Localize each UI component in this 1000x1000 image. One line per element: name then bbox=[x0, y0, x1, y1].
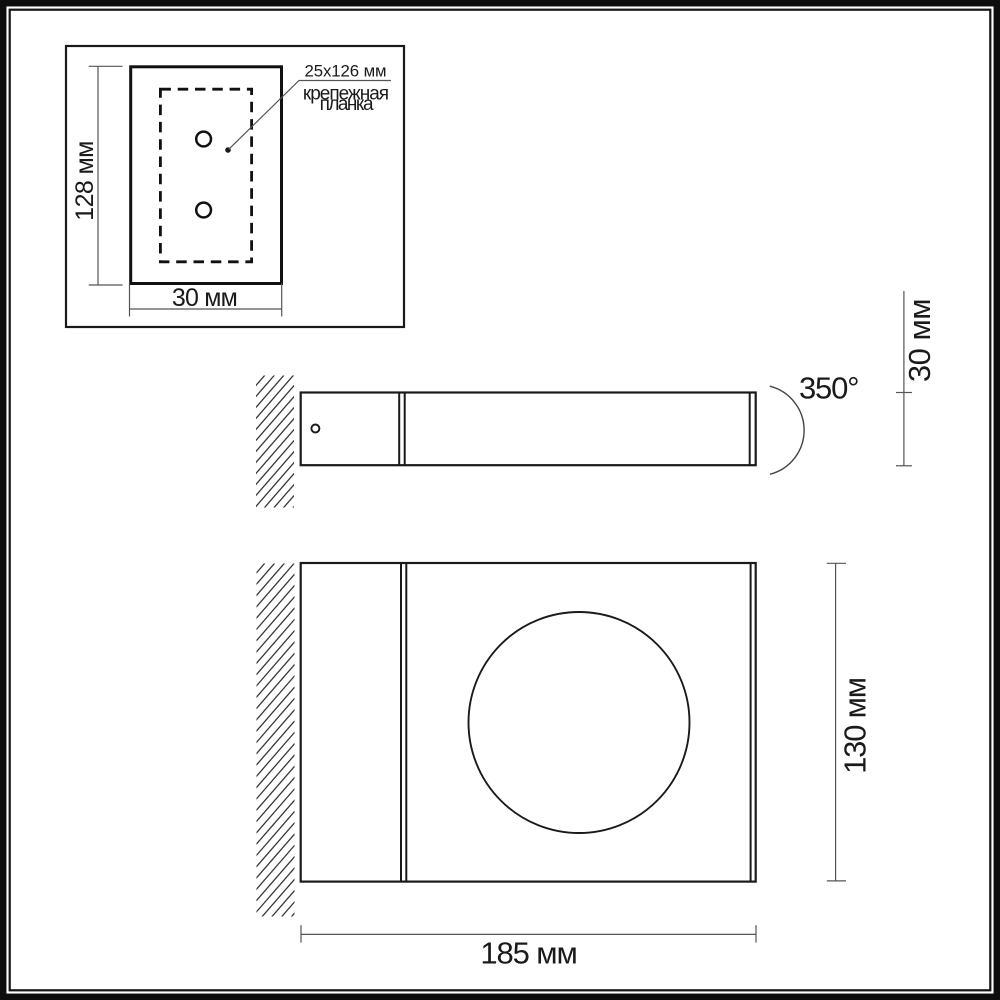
svg-text:планка: планка bbox=[320, 94, 374, 115]
svg-text:185 мм: 185 мм bbox=[480, 936, 576, 971]
svg-text:350°: 350° bbox=[799, 371, 858, 406]
svg-text:30 мм: 30 мм bbox=[172, 284, 237, 312]
svg-text:130 мм: 130 мм bbox=[838, 678, 873, 774]
svg-text:25x126 мм: 25x126 мм bbox=[305, 62, 387, 81]
svg-text:30 мм: 30 мм bbox=[902, 299, 937, 382]
svg-text:128 мм: 128 мм bbox=[71, 141, 99, 220]
